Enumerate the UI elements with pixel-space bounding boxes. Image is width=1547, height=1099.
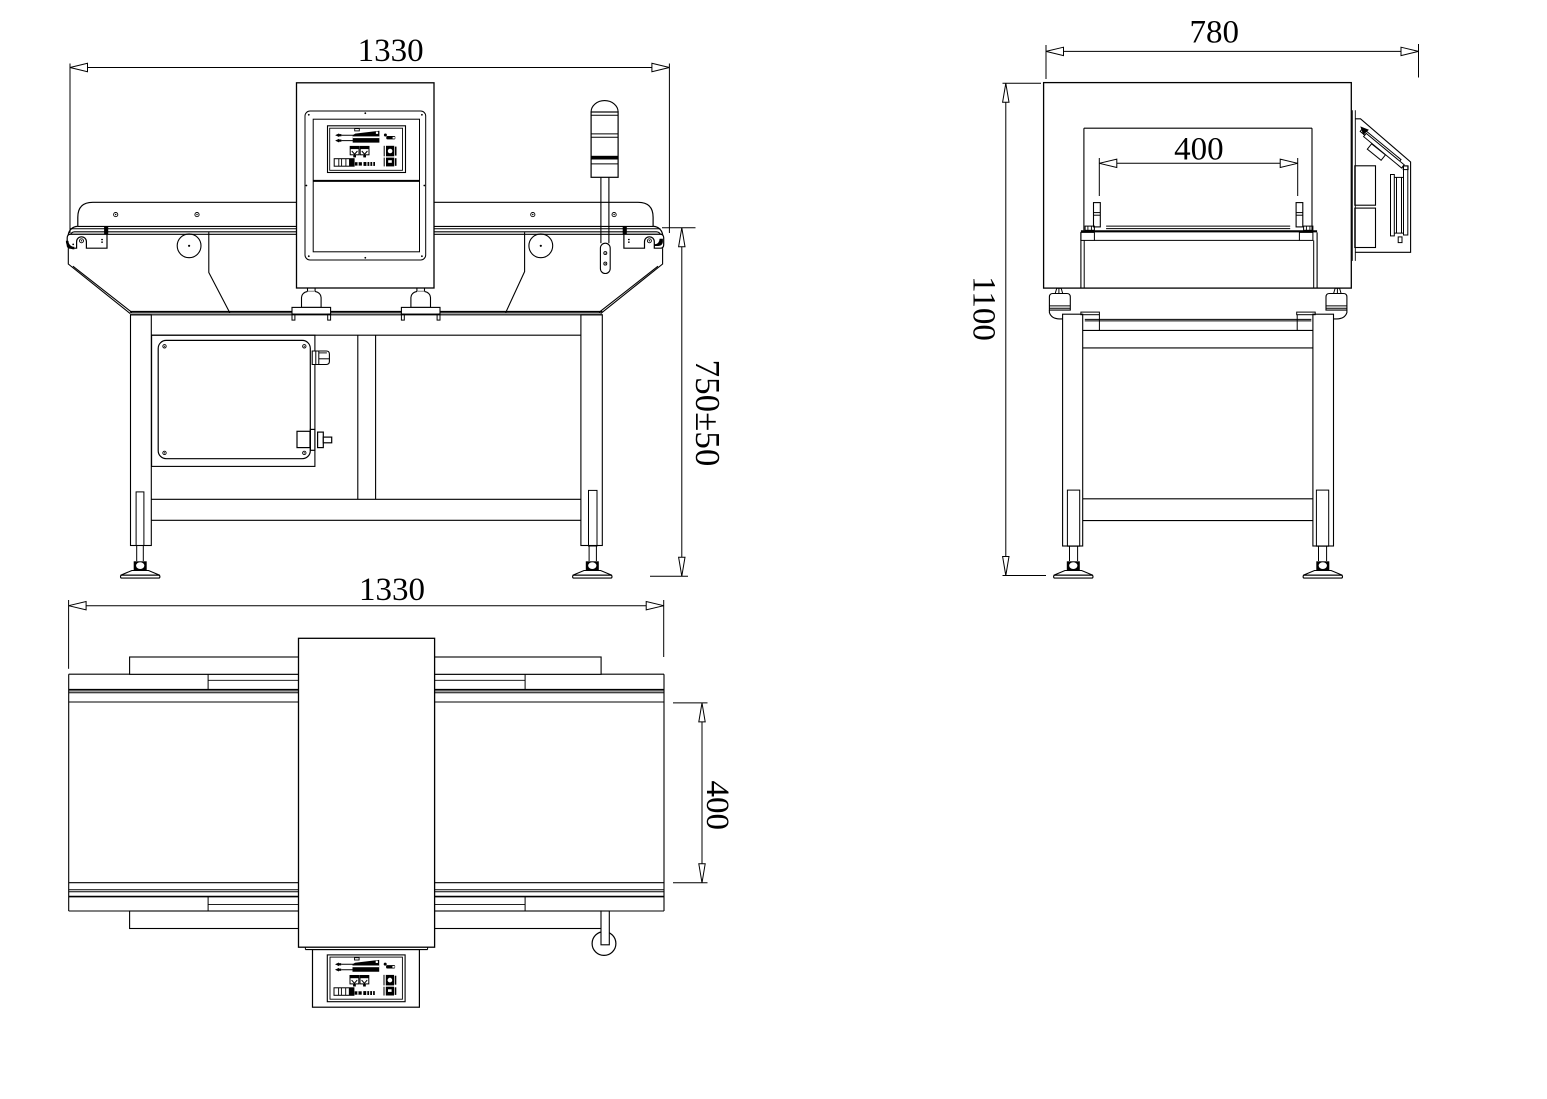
svg-text:1100: 1100 — [966, 276, 1002, 341]
svg-text:750±50: 750±50 — [688, 360, 727, 467]
svg-text:400: 400 — [1174, 132, 1224, 168]
svg-text:780: 780 — [1190, 15, 1240, 51]
svg-text:400: 400 — [699, 781, 735, 831]
svg-text:1330: 1330 — [359, 572, 425, 608]
svg-text:1330: 1330 — [358, 33, 424, 69]
